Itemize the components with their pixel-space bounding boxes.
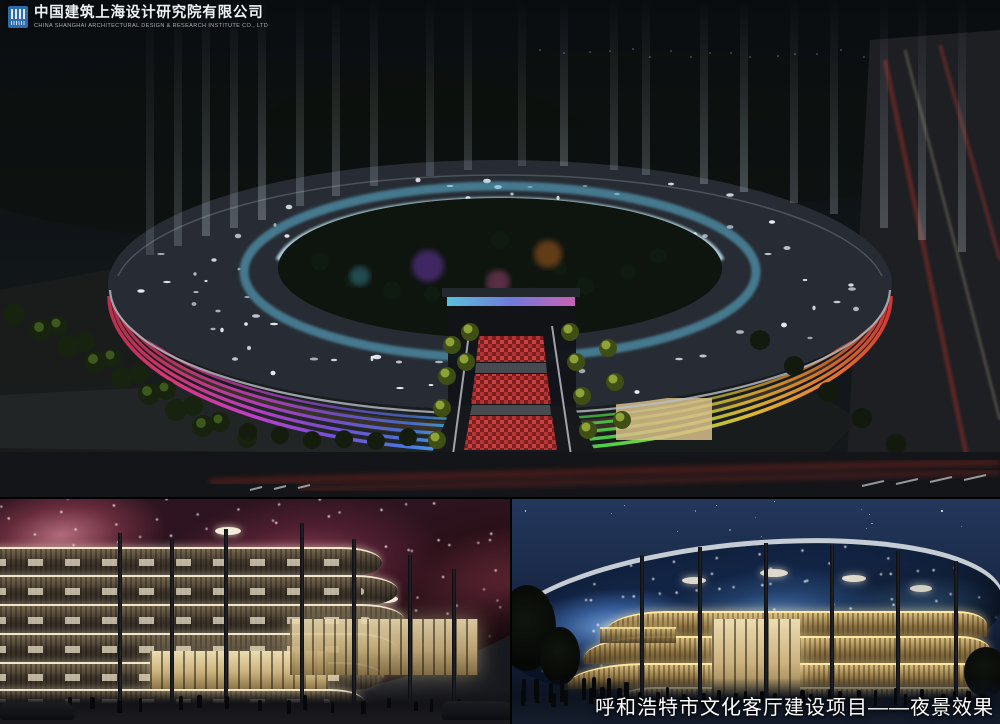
galaxy-canopy-view-panel (0, 499, 510, 724)
star (677, 531, 678, 532)
person-silhouette (564, 690, 568, 706)
star (871, 523, 872, 524)
bridge-roof (442, 288, 580, 297)
star (716, 505, 717, 506)
star (861, 509, 862, 510)
star (611, 513, 612, 514)
person-silhouette (414, 701, 418, 712)
main-aerial-view-panel: 中国建筑上海设计研究院有限公司 CHINA SHANGHAI ARCHITECT… (0, 0, 1000, 497)
glass-bridge (447, 297, 575, 306)
logo-glyph (11, 9, 25, 19)
company-logo-icon (8, 6, 28, 28)
person-silhouette (361, 701, 366, 713)
canopy-column (224, 529, 228, 715)
canopy-column (300, 523, 304, 715)
person-silhouette (522, 679, 526, 701)
canopy-downlight (842, 575, 866, 582)
person-silhouette (139, 698, 143, 712)
glass-lobby (290, 619, 478, 675)
canopy-column (118, 533, 122, 715)
building-band (0, 547, 382, 576)
star (774, 501, 776, 503)
walkway-paving (475, 363, 547, 373)
person-silhouette (549, 683, 554, 703)
company-name-en: CHINA SHANGHAI ARCHITECTURAL DESIGN & RE… (34, 23, 268, 29)
tree-silhouette (540, 627, 580, 685)
star (525, 510, 527, 512)
logo-glyph (11, 21, 25, 25)
star (941, 510, 943, 512)
person-silhouette (225, 696, 229, 709)
red-paved-walkway (471, 374, 551, 404)
person-silhouette (430, 699, 433, 712)
canopy-downlight (910, 585, 932, 592)
garden-glow-orange (534, 240, 562, 268)
presentation-board: 中国建筑上海设计研究院有限公司 CHINA SHANGHAI ARCHITECT… (0, 0, 1000, 724)
red-paved-walkway (476, 336, 546, 362)
star (961, 526, 962, 527)
aerial-scene (0, 0, 1000, 497)
star (869, 514, 870, 515)
star (755, 517, 756, 518)
garden-glow-purple (412, 250, 444, 282)
red-paved-walkway (464, 416, 557, 450)
person-silhouette (560, 680, 564, 702)
canopy-column (170, 539, 174, 715)
star (729, 529, 731, 531)
person-silhouette (258, 700, 263, 710)
person-silhouette (179, 696, 183, 710)
person-silhouette (287, 700, 291, 714)
canopy-downlight (215, 527, 241, 535)
person-silhouette (387, 698, 391, 707)
person-silhouette (582, 678, 586, 700)
person-silhouette (303, 695, 307, 710)
walkway-paving (470, 405, 551, 415)
annex-band (600, 627, 676, 643)
person-silhouette (90, 697, 94, 709)
person-silhouette (117, 701, 122, 713)
car-silhouette (0, 702, 74, 720)
header: 中国建筑上海设计研究院有限公司 CHINA SHANGHAI ARCHITECT… (8, 6, 268, 29)
canopy-column (352, 539, 356, 715)
star (866, 528, 867, 529)
project-caption: 呼和浩特市文化客厅建设项目——夜景效果 (595, 691, 994, 720)
company-name-cn: 中国建筑上海设计研究院有限公司 (34, 6, 268, 21)
person-silhouette (197, 695, 201, 708)
garden-glow-cyan (350, 266, 370, 286)
person-silhouette (331, 702, 334, 713)
foreground-ground (0, 690, 510, 724)
canopy-downlight (682, 577, 706, 584)
company-name-block: 中国建筑上海设计研究院有限公司 CHINA SHANGHAI ARCHITECT… (34, 6, 268, 29)
star (695, 510, 696, 511)
car-silhouette (442, 701, 510, 720)
star (624, 505, 625, 506)
blue-canopy-view-panel: 呼和浩特市文化客厅建设项目——夜景效果 (512, 499, 1000, 724)
person-silhouette (534, 679, 538, 699)
building-band (0, 575, 398, 605)
star (761, 536, 763, 538)
